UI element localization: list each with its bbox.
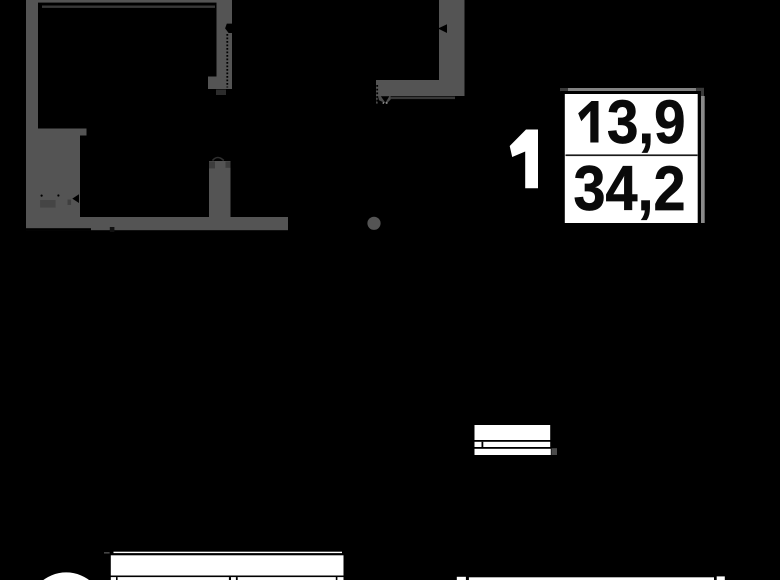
svg-text:3,9: 3,9: [607, 88, 686, 157]
svg-text:34,2: 34,2: [574, 154, 686, 224]
